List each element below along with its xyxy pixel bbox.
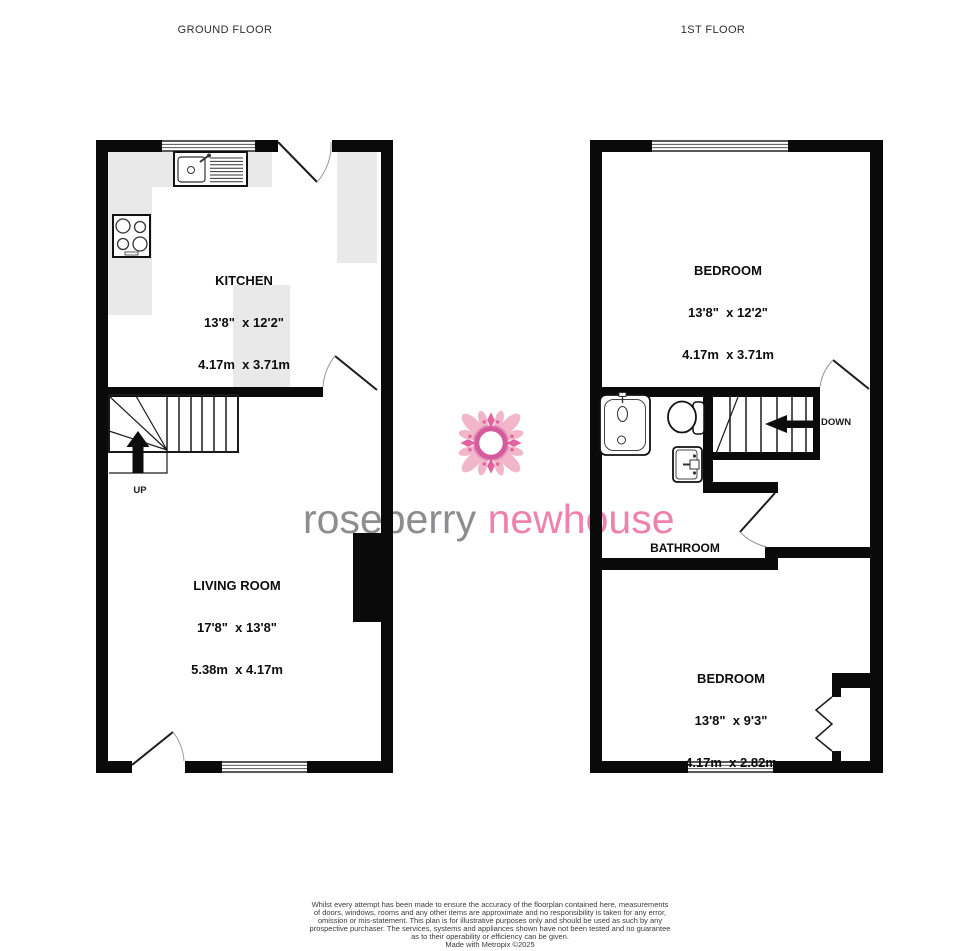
room-imperial: 13'8" x 12'2" — [198, 316, 290, 330]
bathtub-icon — [600, 393, 650, 456]
room-name: KITCHEN — [198, 274, 290, 288]
bedroom-front-label: BEDROOM 13'8" x 12'2" 4.17m x 3.71m — [682, 236, 774, 390]
floorplan-canvas: roseberry newhouse GROUND FLOOR 1ST FLOO… — [0, 0, 980, 951]
bedroom-back-label: BEDROOM 13'8" x 9'3" 4.17m x 2.82m — [685, 644, 777, 798]
kitchen-living-door — [323, 356, 377, 390]
bedroom-front-door — [820, 360, 869, 389]
living-room-label: LIVING ROOM 17'8" x 13'8" 5.38m x 4.17m — [191, 551, 283, 705]
room-name: LIVING ROOM — [191, 579, 283, 593]
ground-stairs — [109, 395, 238, 473]
kitchen-sink-icon — [174, 152, 247, 186]
kitchen-back-door — [278, 142, 331, 182]
bathroom-door — [740, 493, 775, 547]
room-name: BEDROOM — [682, 264, 774, 278]
chimney-breast — [353, 533, 381, 622]
room-metric: 5.38m x 4.17m — [191, 663, 283, 677]
kitchen-label: KITCHEN 13'8" x 12'2" 4.17m x 3.71m — [198, 246, 290, 400]
watermark-flower-logo — [448, 400, 534, 486]
flower-ring — [477, 429, 506, 458]
ground-floor-title: GROUND FLOOR — [178, 24, 273, 36]
room-imperial: 13'8" x 9'3" — [685, 714, 777, 728]
kitchen-hob-icon — [113, 215, 150, 257]
room-imperial: 13'8" x 12'2" — [682, 306, 774, 320]
up-label: UP — [133, 485, 146, 496]
room-imperial: 17'8" x 13'8" — [191, 621, 283, 635]
front-door — [132, 732, 184, 765]
bedroom-front-window — [652, 140, 788, 152]
bathroom-label: BATHROOM — [650, 513, 720, 583]
kitchen-window — [162, 140, 255, 152]
cupboard-folding-door — [816, 697, 832, 751]
down-label: DOWN — [821, 417, 851, 428]
cupboard-stub-wall — [832, 673, 870, 688]
room-name: BATHROOM — [650, 541, 720, 555]
flower-icon — [448, 400, 534, 486]
disclaimer-credit: Made with Metropix ©2025 — [180, 941, 800, 949]
first-floor-title: 1ST FLOOR — [681, 24, 746, 36]
living-room-window — [222, 761, 307, 773]
disclaimer: Whilst every attempt has been made to en… — [180, 901, 800, 949]
basin-icon — [673, 447, 702, 482]
toilet-icon — [668, 402, 704, 435]
room-metric: 4.17m x 2.82m — [685, 756, 777, 770]
room-name: BEDROOM — [685, 672, 777, 686]
room-metric: 4.17m x 3.71m — [198, 358, 290, 372]
room-metric: 4.17m x 3.71m — [682, 348, 774, 362]
